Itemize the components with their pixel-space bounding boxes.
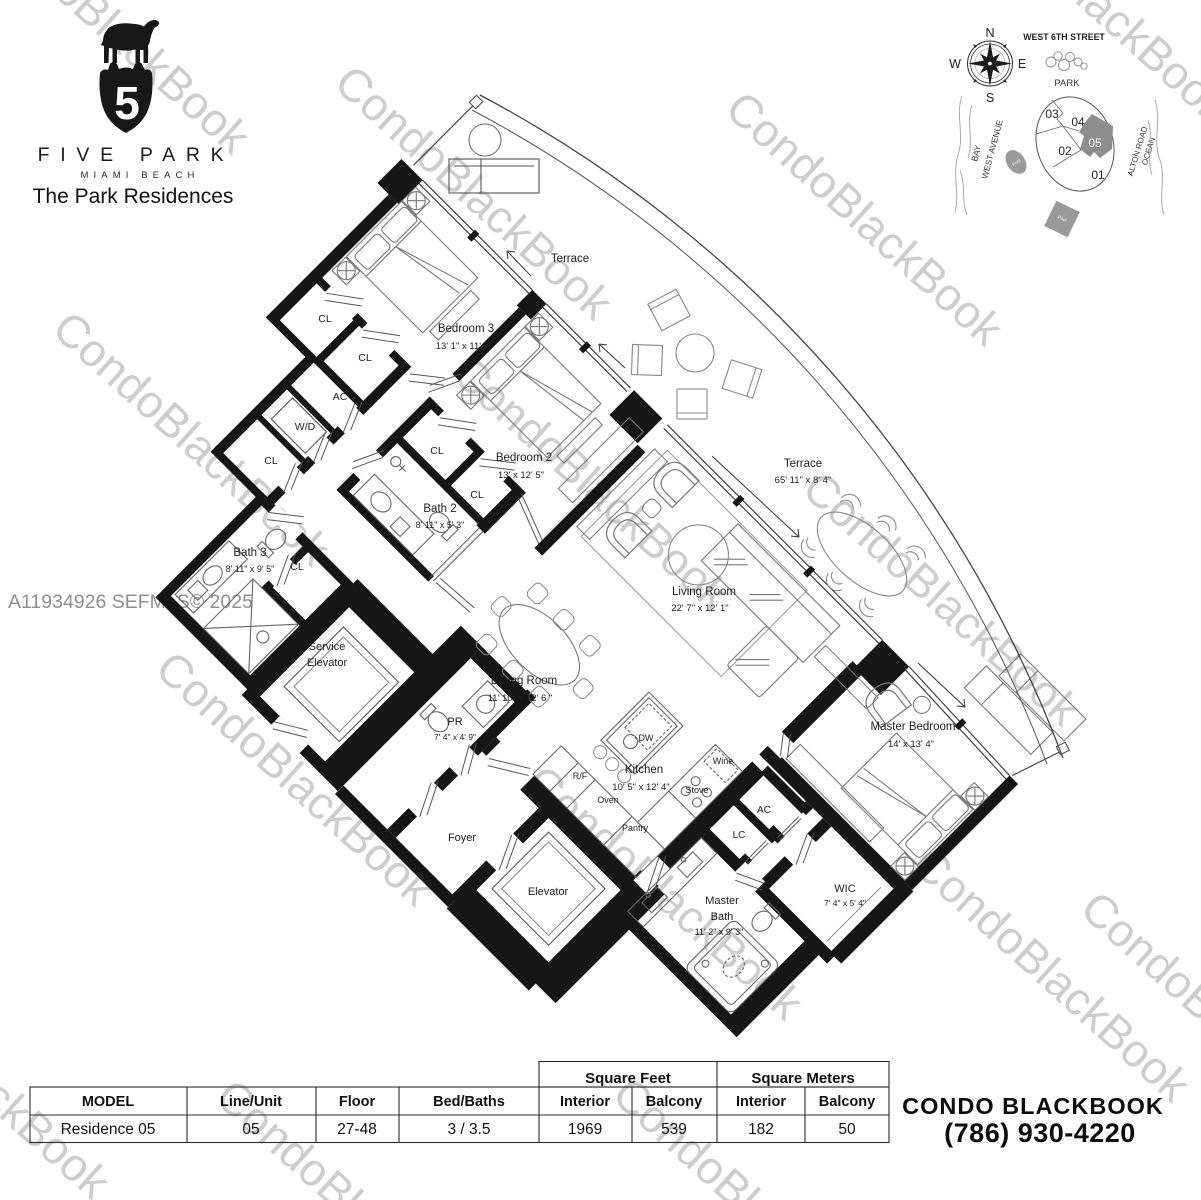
svg-text:CL: CL: [290, 561, 304, 573]
svg-text:Bedroom 3: Bedroom 3: [438, 323, 494, 335]
svg-text:Oven: Oven: [597, 795, 619, 805]
svg-text:Bedroom 2: Bedroom 2: [496, 452, 552, 464]
svg-text:27-48: 27-48: [337, 1121, 377, 1138]
svg-text:7' 4" x 4' 9": 7' 4" x 4' 9": [434, 732, 476, 742]
svg-text:10' 5" x 12' 4": 10' 5" x 12' 4": [612, 782, 669, 793]
svg-text:5: 5: [114, 77, 140, 129]
svg-text:LC: LC: [733, 830, 746, 841]
svg-text:Bath 2: Bath 2: [423, 503, 456, 515]
svg-text:3 / 3.5: 3 / 3.5: [447, 1121, 490, 1138]
svg-text:Bed/Baths: Bed/Baths: [433, 1094, 505, 1110]
svg-text:WIC: WIC: [834, 883, 855, 895]
svg-text:(786) 930-4220: (786) 930-4220: [944, 1118, 1136, 1148]
svg-text:13' 1" x 11' 3": 13' 1" x 11' 3": [436, 341, 493, 352]
svg-text:Pantry: Pantry: [622, 823, 649, 833]
svg-text:Terrace: Terrace: [784, 458, 822, 470]
svg-text:S: S: [986, 91, 994, 105]
svg-text:Line/Unit: Line/Unit: [220, 1094, 282, 1110]
svg-text:Master Bedroom: Master Bedroom: [870, 721, 955, 733]
svg-text:AC: AC: [757, 805, 771, 816]
svg-text:R/F: R/F: [573, 771, 588, 781]
svg-text:PR: PR: [447, 716, 462, 728]
svg-text:Wine: Wine: [713, 756, 734, 766]
svg-text:CL: CL: [358, 352, 372, 364]
svg-text:Living Room: Living Room: [672, 586, 736, 598]
svg-text:Interior: Interior: [560, 1094, 610, 1110]
svg-text:The Park Residences: The Park Residences: [33, 185, 234, 208]
svg-text:Kitchen: Kitchen: [625, 764, 663, 776]
svg-text:13' x 12' 5": 13' x 12' 5": [498, 470, 544, 481]
svg-text:Bath: Bath: [711, 911, 734, 923]
svg-text:Bath 3: Bath 3: [233, 547, 266, 559]
svg-text:Balcony: Balcony: [819, 1094, 875, 1110]
svg-text:03: 03: [1045, 107, 1059, 121]
svg-text:Terrace: Terrace: [551, 253, 589, 265]
svg-text:22' 7" x 12' 1": 22' 7" x 12' 1": [671, 603, 728, 614]
svg-text:W: W: [949, 57, 961, 71]
svg-text:MODEL: MODEL: [82, 1094, 135, 1110]
svg-text:05: 05: [242, 1121, 259, 1138]
svg-text:PARK: PARK: [1054, 78, 1080, 89]
svg-text:14' x 13' 4": 14' x 13' 4": [888, 739, 934, 750]
svg-text:539: 539: [661, 1121, 687, 1138]
svg-text:Interior: Interior: [736, 1094, 786, 1110]
svg-text:Floor: Floor: [339, 1094, 376, 1110]
svg-text:Dining Room: Dining Room: [491, 675, 557, 687]
svg-text:Elevator: Elevator: [307, 657, 348, 669]
svg-text:Foyer: Foyer: [448, 832, 476, 844]
svg-text:CL: CL: [264, 455, 278, 467]
svg-text:Residence 05: Residence 05: [61, 1121, 156, 1138]
svg-text:N: N: [985, 26, 994, 40]
svg-text:Balcony: Balcony: [646, 1094, 702, 1110]
svg-text:CL: CL: [318, 313, 332, 325]
svg-text:WEST 6TH STREET: WEST 6TH STREET: [1023, 32, 1105, 42]
svg-text:Service: Service: [309, 641, 346, 653]
svg-text:AC: AC: [333, 391, 348, 403]
svg-text:11' 10" x 12' 6 ": 11' 10" x 12' 6 ": [488, 693, 553, 704]
svg-text:8' 11" x 5' 3": 8' 11" x 5' 3": [416, 520, 465, 530]
svg-text:E: E: [1018, 57, 1026, 71]
svg-text:MIAMI BEACH: MIAMI BEACH: [81, 170, 200, 181]
svg-text:8' 11" x 9' 5": 8' 11" x 9' 5": [226, 564, 275, 574]
svg-text:04: 04: [1071, 115, 1085, 129]
svg-text:DW: DW: [639, 733, 654, 743]
svg-text:05: 05: [1088, 136, 1102, 150]
svg-text:01: 01: [1091, 168, 1105, 182]
svg-text:FIVE PARK: FIVE PARK: [38, 144, 235, 166]
svg-text:CONDO BLACKBOOK: CONDO BLACKBOOK: [902, 1093, 1164, 1119]
svg-text:A11934926 SEFMLS© 2025: A11934926 SEFMLS© 2025: [8, 591, 253, 613]
svg-text:Square Meters: Square Meters: [751, 1070, 854, 1087]
svg-text:CL: CL: [430, 445, 444, 457]
svg-text:11' 2" x 9' 3": 11' 2" x 9' 3": [695, 927, 744, 937]
svg-text:02: 02: [1058, 144, 1072, 158]
svg-text:182: 182: [748, 1121, 774, 1138]
svg-text:CL: CL: [470, 489, 484, 501]
svg-text:Stove: Stove: [685, 785, 708, 795]
svg-text:W/D: W/D: [295, 421, 316, 433]
svg-text:Elevator: Elevator: [528, 886, 569, 898]
svg-text:7' 4" x 5' 4": 7' 4" x 5' 4": [824, 898, 866, 908]
svg-text:Square Feet: Square Feet: [585, 1070, 671, 1087]
svg-text:50: 50: [838, 1121, 856, 1138]
svg-text:65' 11" x 8' 4": 65' 11" x 8' 4": [775, 475, 832, 486]
svg-text:Master: Master: [705, 895, 739, 907]
svg-text:1969: 1969: [568, 1121, 602, 1138]
